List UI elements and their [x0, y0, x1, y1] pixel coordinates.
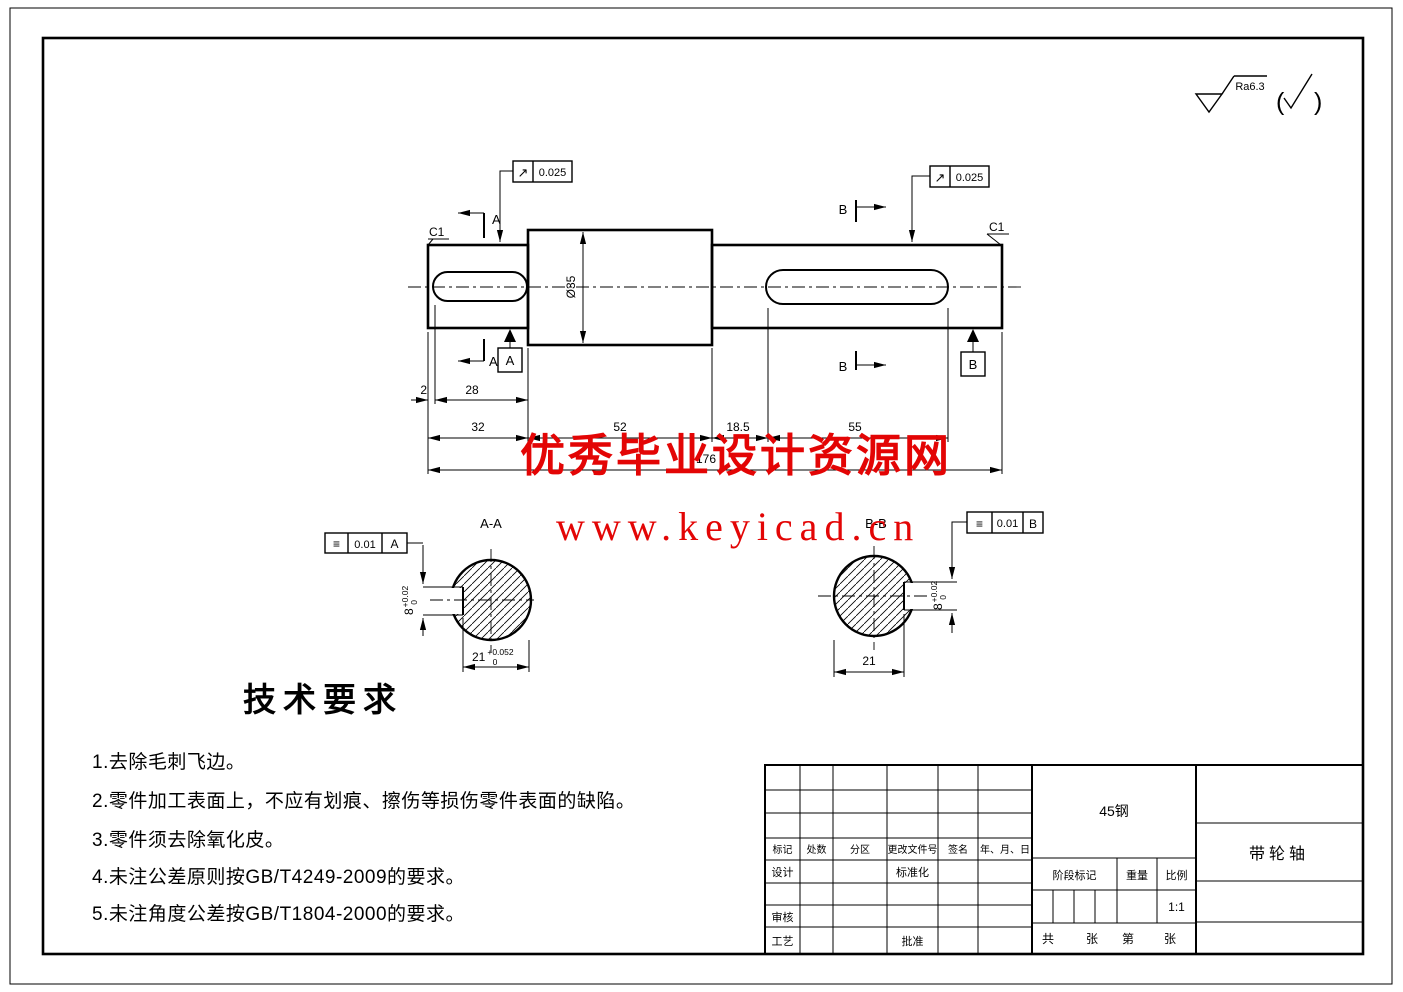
material-label: 45钢: [1099, 803, 1129, 819]
header-zone: 分区: [850, 844, 870, 856]
title-block: 标记 处数 分区 更改文件号 签名 年、月、日 设计 标准化 审核 工艺 批准 …: [765, 765, 1363, 954]
label-check: 审核: [772, 910, 794, 924]
sheet-no-label: 第: [1122, 932, 1134, 946]
weight-label: 重量: [1126, 868, 1148, 882]
revision-table: 标记 处数 分区 更改文件号 签名 年、月、日 设计 标准化 审核 工艺 批准: [765, 765, 1032, 954]
watermark-line2: www.keyicad.cn: [556, 505, 920, 549]
section-cut-a: A A: [458, 212, 501, 369]
runout-symbol-icon: ↗: [935, 170, 946, 185]
datum-b: B: [961, 329, 985, 376]
runout-right-value: 0.025: [956, 172, 984, 184]
bb-key-width-dim: 8+0.020: [929, 581, 948, 610]
sheet-total-label: 共: [1042, 932, 1054, 946]
label-process: 工艺: [772, 935, 794, 948]
left-keyway-slot: [433, 272, 527, 301]
header-doc-no: 更改文件号: [888, 843, 938, 856]
basic-check-symbol: [1284, 74, 1312, 108]
shaft-left-section: [428, 245, 528, 328]
dim-end-gap: 2: [420, 383, 427, 397]
inner-border: [43, 38, 1363, 954]
label-standardization: 标准化: [896, 865, 929, 879]
aa-title: A-A: [480, 516, 502, 531]
main-view: C1 C1 Ø35 ↗ 0.025 ↗ 0.025 A: [408, 161, 1022, 474]
roughness-symbol: Ra6.3 ( ): [1196, 74, 1322, 116]
watermark-line1: 优秀毕业设计资源网: [520, 433, 952, 479]
tech-requirement-item: 5.未注角度公差按GB/T1804-2000的要求。: [92, 899, 465, 926]
runout-symbol-icon: ↗: [518, 165, 529, 180]
sheet-no-unit: 张: [1164, 932, 1176, 946]
symmetry-icon: ≡: [976, 517, 983, 531]
dim-left-key-len: 28: [465, 383, 479, 397]
cut-a-bottom-label: A: [489, 354, 498, 369]
header-count: 处数: [807, 843, 827, 856]
datum-b-label: B: [969, 357, 978, 372]
part-name-block: 带轮轴: [1196, 823, 1363, 922]
cut-a-top-label: A: [492, 212, 501, 227]
aa-tol-datum: A: [390, 537, 398, 551]
drawing-sheet: Ra6.3 ( ) C1 C1 Ø35 ↗ 0.025: [0, 0, 1403, 992]
tech-requirement-item: 3.零件须去除氧化皮。: [92, 825, 284, 852]
symmetry-icon: ≡: [333, 537, 340, 551]
scale-label: 比例: [1166, 868, 1188, 882]
aa-depth-dim: 21+0.0520: [472, 647, 514, 667]
chamfer-label-left: C1: [429, 225, 445, 239]
close-paren: ): [1314, 88, 1322, 116]
sheet-total-unit: 张: [1086, 932, 1098, 946]
tech-requirement-item: 1.去除毛刺飞边。: [92, 747, 245, 774]
header-date: 年、月、日: [980, 843, 1030, 856]
diameter-dim-label: Ø35: [564, 275, 578, 298]
header-mark: 标记: [773, 844, 793, 856]
bb-tol-datum: B: [1029, 517, 1037, 531]
chamfer-label-right: C1: [989, 220, 1005, 234]
label-design: 设计: [772, 866, 794, 879]
runout-left-value: 0.025: [539, 167, 567, 179]
tech-requirement-item: 2.零件加工表面上，不应有划痕、擦伤等损伤零件表面的缺陷。: [92, 786, 635, 813]
shaft-mid-section: [528, 230, 712, 345]
datum-a-label: A: [506, 353, 515, 368]
aa-tolerance-frame: ≡ 0.01 A: [325, 533, 423, 553]
shaft-right-section: [712, 245, 1002, 328]
open-paren: (: [1276, 88, 1285, 116]
stage-label: 阶段标记: [1053, 868, 1097, 882]
datum-a: A: [498, 329, 522, 372]
part-name: 带轮轴: [1249, 845, 1309, 863]
tech-requirement-item: 4.未注公差原则按GB/T4249-2009的要求。: [92, 862, 465, 889]
header-signature: 签名: [948, 843, 968, 856]
bb-tol-value: 0.01: [997, 518, 1018, 530]
aa-key-width-dim: 8+0.020: [400, 586, 419, 615]
roughness-value: Ra6.3: [1235, 81, 1264, 93]
aa-tol-value: 0.01: [354, 539, 375, 551]
cut-b-bottom-label: B: [839, 359, 848, 374]
dim-left-seg: 32: [471, 420, 485, 434]
runout-frame-right: ↗ 0.025: [912, 166, 989, 242]
cut-b-top-label: B: [839, 202, 848, 217]
tech-requirements-title: 技术要求: [243, 673, 403, 721]
label-approve: 批准: [902, 934, 924, 948]
bb-depth-dim: 21: [862, 654, 876, 668]
scale-value: 1:1: [1168, 900, 1185, 914]
bb-tolerance-frame: ≡ 0.01 B: [952, 512, 1043, 544]
section-view-aa: A-A 8+0.020 ≡ 0.01 A 21+0.0520: [325, 516, 534, 672]
material-scale-block: 45钢 阶段标记 重量 比例 1:1 共 张 第 张: [1032, 803, 1196, 946]
